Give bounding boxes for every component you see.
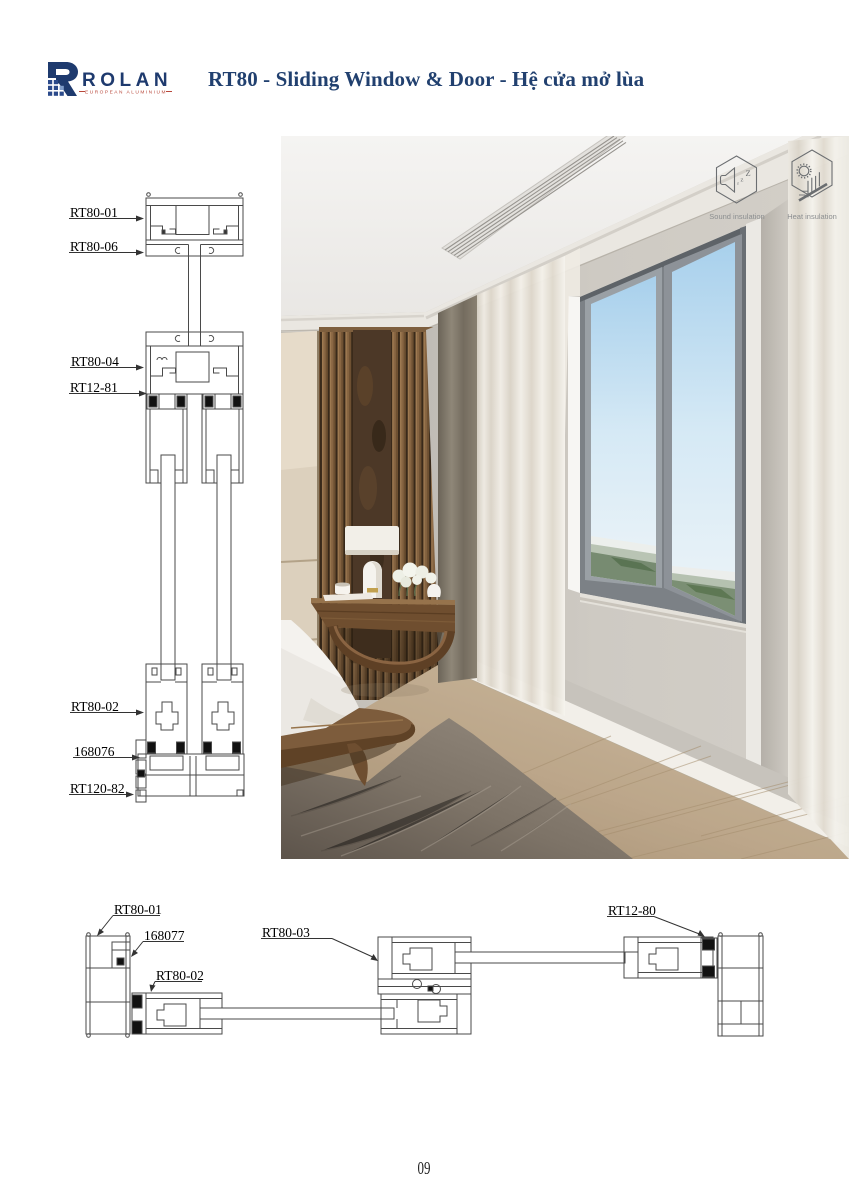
svg-text:RT80-04: RT80-04 bbox=[71, 354, 119, 369]
svg-text:ROLAN: ROLAN bbox=[82, 70, 172, 91]
svg-text:EUROPEAN ALUMINIUM: EUROPEAN ALUMINIUM bbox=[85, 90, 167, 96]
svg-text:168077: 168077 bbox=[144, 928, 185, 943]
svg-text:RT80-02: RT80-02 bbox=[71, 699, 119, 714]
svg-text:RT80-01: RT80-01 bbox=[114, 902, 162, 917]
svg-text:Z: Z bbox=[746, 168, 751, 178]
svg-text:Sound insulation: Sound insulation bbox=[709, 212, 764, 221]
svg-text:RT12-80: RT12-80 bbox=[608, 903, 656, 918]
svg-text:168076: 168076 bbox=[74, 744, 115, 759]
svg-text:Heat insulation: Heat insulation bbox=[787, 212, 837, 221]
svg-text:z: z bbox=[741, 177, 744, 184]
svg-text:RT80-03: RT80-03 bbox=[262, 925, 310, 940]
svg-text:RT80-01: RT80-01 bbox=[70, 205, 118, 220]
svg-text:RT80-02: RT80-02 bbox=[156, 968, 204, 983]
svg-text:RT12-81: RT12-81 bbox=[70, 380, 118, 395]
svg-text:RT80-06: RT80-06 bbox=[70, 239, 118, 254]
svg-text:RT120-82: RT120-82 bbox=[70, 781, 125, 796]
svg-text:z: z bbox=[737, 181, 739, 186]
